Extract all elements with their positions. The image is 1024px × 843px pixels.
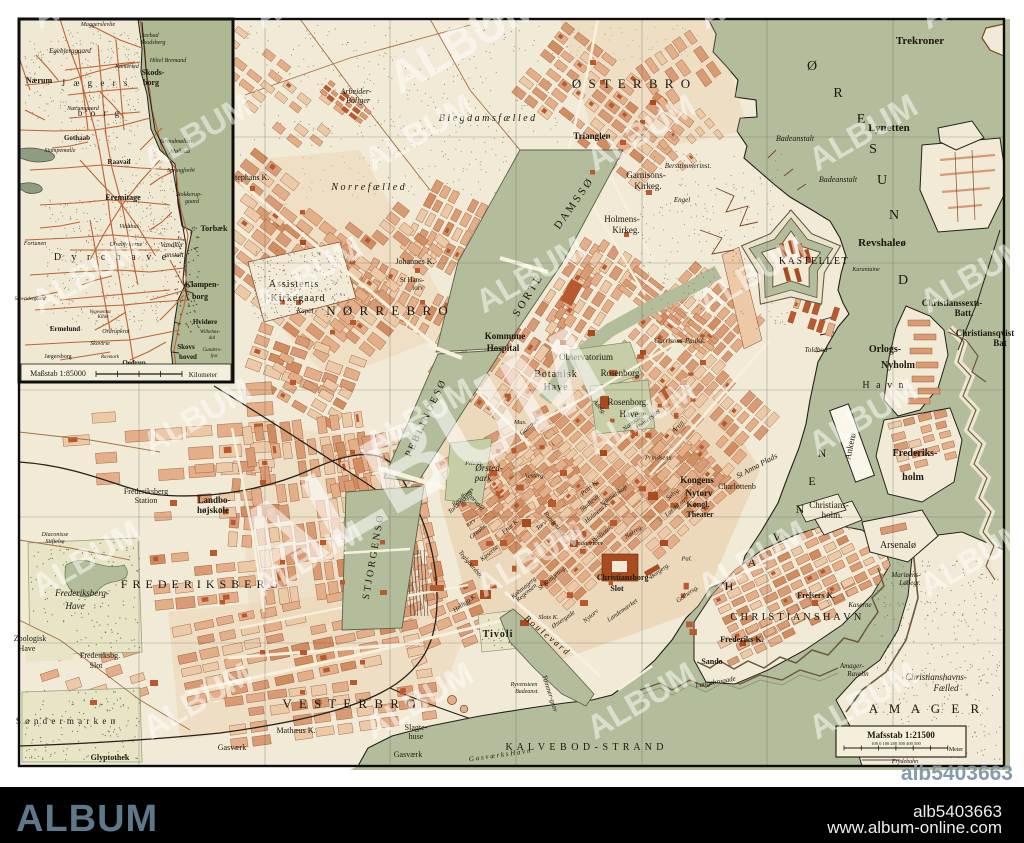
svg-text:Jægersborg: Jægersborg	[44, 354, 71, 360]
svg-text:Skods-: Skods-	[141, 68, 164, 77]
svg-text:Maßstab 1:85000: Maßstab 1:85000	[30, 369, 86, 378]
svg-text:Seebad: Seebad	[141, 33, 159, 39]
svg-text:Mathæus K.: Mathæus K.	[276, 726, 315, 735]
svg-text:Revshaleø: Revshaleø	[858, 237, 906, 249]
svg-text:Badeanstalt: Badeanstalt	[819, 175, 858, 184]
svg-text:Ryvensteen: Ryvensteen	[510, 682, 538, 688]
svg-text:Johannes K.: Johannes K.	[395, 257, 434, 266]
svg-text:Gothaab: Gothaab	[64, 134, 90, 142]
svg-text:Kongl.: Kongl.	[687, 500, 710, 509]
svg-text:D: D	[898, 273, 908, 288]
svg-text:Gunders-: Gunders-	[203, 348, 222, 353]
svg-text:R: R	[833, 86, 843, 101]
svg-text:Kamerted: Kamerted	[114, 64, 140, 70]
svg-text:Wilhelms-: Wilhelms-	[200, 330, 220, 335]
svg-text:Stokkerup-: Stokkerup-	[176, 192, 202, 198]
svg-text:alb5403663: alb5403663	[901, 762, 1013, 785]
svg-text:Fælled: Fælled	[933, 683, 959, 693]
svg-text:www.album-online.com: www.album-online.com	[826, 818, 1002, 837]
svg-text:Boliger: Boliger	[346, 96, 371, 105]
svg-text:huse: huse	[409, 732, 424, 741]
svg-text:hoved: hoved	[179, 353, 197, 361]
svg-text:Garrisons-Paulsk.: Garrisons-Paulsk.	[654, 337, 706, 345]
svg-text:Skovtrie: Skovtrie	[90, 341, 110, 347]
svg-text:Toldbod: Toldbod	[805, 346, 828, 354]
svg-text:Glyptothek: Glyptothek	[91, 753, 130, 762]
svg-text:Diaconisse: Diaconisse	[41, 532, 69, 538]
svg-text:Ø: Ø	[807, 59, 817, 74]
svg-text:Trekroner: Trekroner	[896, 35, 944, 47]
svg-text:Hvidøre: Hvidøre	[193, 318, 217, 326]
svg-text:Vesterg.: Vesterg.	[525, 473, 546, 480]
svg-text:Station: Station	[135, 496, 158, 505]
svg-text:Karantaine: Karantaine	[851, 267, 880, 273]
svg-text:borg: borg	[143, 78, 159, 87]
svg-text:Nytorv: Nytorv	[686, 488, 713, 498]
svg-text:Frederiks-: Frederiks-	[893, 448, 938, 459]
svg-text:Fortunen: Fortunen	[23, 241, 46, 247]
svg-text:Kirkeg.: Kirkeg.	[634, 181, 661, 191]
svg-text:Pal.: Pal.	[680, 556, 692, 563]
svg-text:N Ø R R E B R O: N Ø R R E B R O	[326, 303, 450, 318]
svg-text:100 0 100 200 300 400 50: 100 0 100 200 300 400 500	[871, 741, 921, 746]
svg-text:Vandkur: Vandkur	[160, 241, 184, 249]
svg-text:Mafsstab 1:21500: Mafsstab 1:21500	[867, 730, 935, 740]
svg-text:torv: torv	[412, 284, 424, 292]
svg-text:Amager-: Amager-	[839, 662, 865, 670]
svg-text:N: N	[889, 208, 899, 223]
svg-text:Kilde: Kilde	[97, 315, 110, 320]
svg-text:Frederiksbg.: Frederiksbg.	[80, 651, 120, 660]
svg-text:Nærumgaard: Nærumgaard	[66, 106, 100, 112]
svg-text:Nærum: Nærum	[26, 76, 53, 85]
svg-text:Frederiks K.: Frederiks K.	[720, 635, 763, 644]
svg-text:Kirkeg.: Kirkeg.	[612, 225, 639, 235]
svg-text:Skovs: Skovs	[177, 343, 195, 351]
svg-text:Holmens-: Holmens-	[604, 214, 640, 224]
svg-text:Hôtel Bremand: Hôtel Bremand	[149, 58, 188, 64]
svg-text:gaard: gaard	[185, 199, 200, 205]
svg-text:Klampen-: Klampen-	[185, 280, 220, 289]
svg-text:Tivoli: Tivoli	[483, 629, 514, 640]
svg-text:Stampemølle: Stampemølle	[45, 148, 76, 154]
svg-text:Arbeider-: Arbeider-	[340, 87, 372, 96]
svg-text:ALBUM: ALBUM	[16, 798, 158, 840]
svg-text:N: N	[796, 502, 805, 516]
svg-text:Frederiksberg: Frederiksberg	[124, 487, 168, 496]
svg-text:Skodsberg: Skodsberg	[141, 40, 166, 46]
svg-text:Ravmark: Ravmark	[100, 355, 120, 360]
svg-text:Charlottenb: Charlottenb	[718, 482, 756, 491]
svg-text:Garnisons-: Garnisons-	[626, 170, 666, 180]
svg-text:Theater: Theater	[686, 510, 714, 519]
svg-text:Bersttimmerinst.: Bersttimmerinst.	[665, 162, 712, 170]
svg-text:Have: Have	[65, 601, 85, 611]
svg-text:Egebjerggaard: Egebjerggaard	[48, 47, 91, 55]
svg-text:Prindsens: Prindsens	[644, 455, 671, 462]
svg-text:J æ g e r s: J æ g e r s	[62, 78, 131, 88]
svg-text:Slots K.: Slots K.	[538, 614, 559, 621]
svg-text:Kongens: Kongens	[680, 475, 714, 485]
svg-text:lyst: lyst	[211, 354, 219, 359]
svg-text:E: E	[808, 474, 815, 488]
svg-text:Vildthus: Vildthus	[119, 224, 139, 230]
svg-text:Christiansqvist: Christiansqvist	[956, 328, 1015, 338]
svg-text:Raavad: Raavad	[108, 158, 131, 166]
svg-text:Ø S T E R B R O: Ø S T E R B R O	[572, 76, 692, 91]
svg-text:C H R I S T I A N S H A V N: C H R I S T I A N S H A V N	[730, 612, 861, 623]
svg-text:Stephans K.: Stephans K.	[231, 173, 270, 182]
svg-text:Engel: Engel	[673, 196, 690, 204]
svg-text:Christiansborg-: Christiansborg-	[597, 573, 652, 582]
svg-text:Torbæk: Torbæk	[201, 224, 228, 233]
svg-text:Christians-: Christians-	[809, 500, 849, 510]
svg-text:Rosenborg: Rosenborg	[601, 368, 640, 378]
svg-text:Nyholm: Nyholm	[881, 360, 916, 371]
svg-text:Slot: Slot	[610, 584, 624, 593]
svg-text:Frelsers K.: Frelsers K.	[797, 591, 835, 600]
svg-text:dal: dal	[209, 336, 216, 341]
svg-text:Ermelund: Ermelund	[50, 325, 80, 333]
svg-text:Maggerslevlte: Maggerslevlte	[80, 22, 116, 28]
svg-text:St Hans-: St Hans-	[400, 276, 425, 284]
svg-text:Have: Have	[19, 644, 36, 653]
svg-text:holm: holm	[902, 472, 924, 483]
svg-text:Batt.: Batt.	[955, 308, 974, 318]
svg-text:Eremitage: Eremitage	[105, 193, 141, 202]
svg-text:Arsenalø: Arsenalø	[880, 540, 916, 551]
svg-text:S ø n d e r m a r k e n: S ø n d e r m a r k e n	[16, 716, 116, 726]
svg-text:borg: borg	[192, 292, 208, 301]
svg-text:Sando: Sando	[701, 657, 722, 666]
svg-text:Stiftelse: Stiftelse	[46, 538, 65, 545]
svg-text:Badeanst.: Badeanst.	[515, 689, 539, 695]
svg-text:Orlogs-: Orlogs-	[869, 344, 901, 355]
svg-text:Kilometer: Kilometer	[189, 371, 218, 379]
svg-text:Gasværk: Gasværk	[218, 743, 246, 752]
svg-text:Slot: Slot	[90, 661, 104, 670]
svg-text:Gasværk: Gasværk	[394, 750, 422, 759]
svg-text:Kapel: Kapel	[296, 307, 314, 315]
svg-text:Kaserne: Kaserne	[847, 601, 871, 609]
svg-text:U: U	[877, 173, 887, 188]
svg-text:Meter: Meter	[949, 747, 963, 753]
svg-text:holm.: holm.	[822, 510, 843, 520]
svg-text:Ordrupkrat: Ordrupkrat	[102, 329, 130, 335]
svg-text:N o r r e f æ l l e d: N o r r e f æ l l e d	[330, 182, 405, 193]
